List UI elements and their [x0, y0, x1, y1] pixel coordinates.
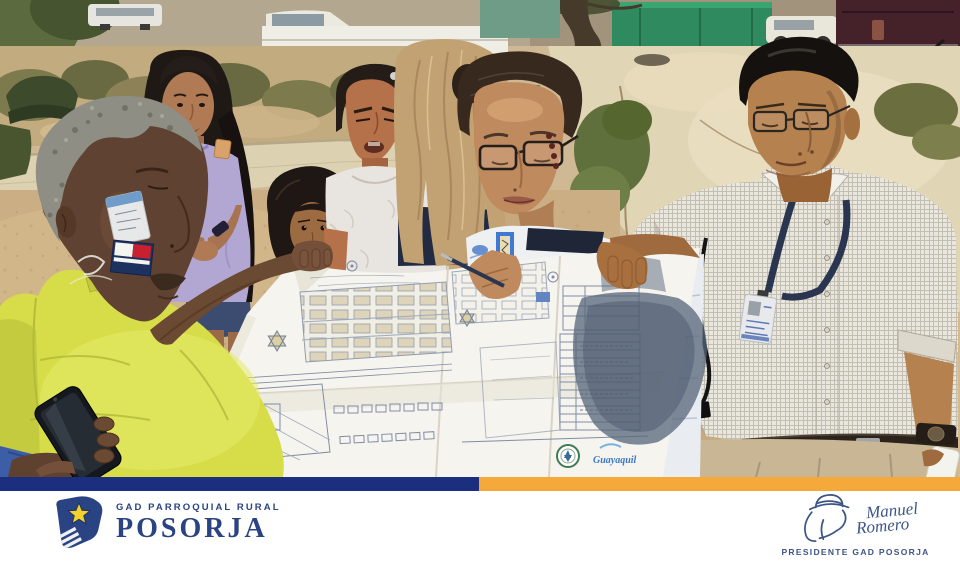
- tommy-hilfiger-logo: [110, 240, 153, 276]
- page: Guayaquil: [0, 0, 960, 568]
- signature-name: Manuel Romero: [866, 503, 918, 534]
- shirt-sticker: [214, 139, 231, 159]
- brand-small: GAD PARROQUIAL RURAL: [116, 503, 281, 513]
- signature-title: PRESIDENTE GAD POSORJA: [768, 547, 943, 557]
- accent-bar-navy: [0, 477, 479, 491]
- footer: GAD PARROQUIAL RURAL POSORJA: [0, 491, 960, 568]
- signature-last: Romero: [855, 516, 918, 537]
- maroon-pickup-truck: [836, 0, 960, 54]
- posorja-logo: GAD PARROQUIAL RURAL POSORJA: [50, 494, 281, 552]
- accent-bar-orange: [479, 477, 960, 491]
- map-seal: [557, 445, 579, 467]
- brand-large: POSORJA: [116, 515, 281, 543]
- khaki-pants: [696, 439, 958, 477]
- posorja-emblem-icon: [50, 494, 108, 552]
- signature-block: Manuel Romero PRESIDENTE GAD POSORJA: [768, 491, 943, 557]
- wristwatch: [915, 423, 956, 446]
- teal-wall: [480, 0, 560, 38]
- guayaquil-logo-text: Guayaquil: [593, 455, 637, 466]
- photo: Guayaquil: [0, 0, 960, 477]
- footer-accent-bar: [0, 477, 960, 491]
